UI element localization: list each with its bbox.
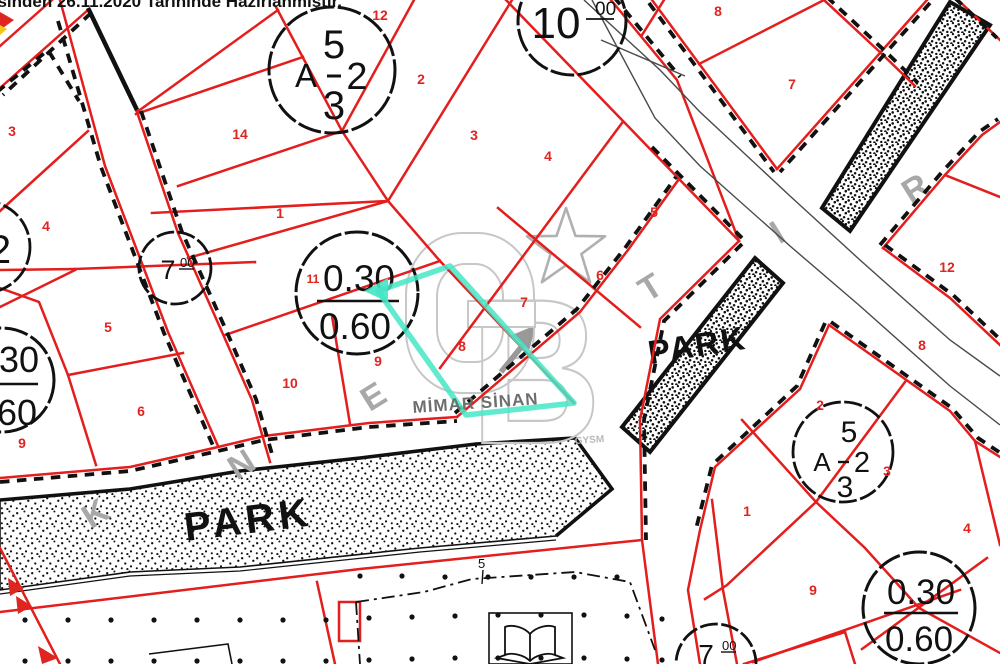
svg-text:A: A xyxy=(295,57,317,94)
svg-text:3: 3 xyxy=(837,471,854,504)
svg-text:8: 8 xyxy=(918,337,926,353)
svg-text:4: 4 xyxy=(544,148,552,164)
svg-text:2: 2 xyxy=(854,447,870,479)
svg-text:7: 7 xyxy=(698,639,714,664)
svg-text:0.60: 0.60 xyxy=(885,620,953,659)
svg-text:7: 7 xyxy=(788,76,796,92)
svg-text:0.60: 0.60 xyxy=(0,392,37,433)
svg-text:2: 2 xyxy=(346,56,367,98)
svg-text:5: 5 xyxy=(841,416,858,449)
svg-text:14: 14 xyxy=(232,126,248,142)
svg-text:3: 3 xyxy=(323,84,345,128)
svg-text:3: 3 xyxy=(8,123,16,139)
svg-text:10: 10 xyxy=(532,0,581,48)
svg-text:0.30: 0.30 xyxy=(0,339,39,380)
svg-text:9: 9 xyxy=(809,582,817,598)
svg-text:00: 00 xyxy=(722,638,736,653)
svg-text:8: 8 xyxy=(458,338,466,354)
svg-text:0.60: 0.60 xyxy=(319,306,391,347)
svg-text:GYSM: GYSM xyxy=(574,434,604,447)
svg-text:00: 00 xyxy=(180,255,194,270)
svg-text:6: 6 xyxy=(596,267,604,283)
svg-text:B: B xyxy=(470,256,602,487)
svg-text:5: 5 xyxy=(104,319,112,335)
svg-text:2: 2 xyxy=(0,228,11,272)
svg-text:5: 5 xyxy=(478,556,485,571)
svg-text:4: 4 xyxy=(42,218,50,234)
svg-text:11: 11 xyxy=(307,272,320,286)
svg-text:00: 00 xyxy=(595,0,616,20)
svg-text:9: 9 xyxy=(18,435,26,451)
svg-text:5: 5 xyxy=(650,204,658,220)
svg-text:4: 4 xyxy=(963,520,971,536)
svg-text:1: 1 xyxy=(743,503,751,519)
svg-text:12: 12 xyxy=(372,7,388,23)
svg-text:2: 2 xyxy=(417,71,425,87)
svg-text:A: A xyxy=(813,447,831,477)
svg-text:10: 10 xyxy=(282,375,298,391)
svg-text:3: 3 xyxy=(470,127,478,143)
svg-text:7: 7 xyxy=(160,255,175,285)
svg-text:esinden 26.11.2020 Tarihinde H: esinden 26.11.2020 Tarihinde Hazırlanmış… xyxy=(0,0,342,11)
svg-text:8: 8 xyxy=(714,3,722,19)
svg-text:0.30: 0.30 xyxy=(887,573,955,612)
svg-text:2: 2 xyxy=(816,397,824,413)
svg-text:3: 3 xyxy=(883,463,891,479)
svg-text:7: 7 xyxy=(520,294,528,310)
svg-text:6: 6 xyxy=(137,403,145,419)
svg-text:5: 5 xyxy=(323,23,345,67)
svg-text:12: 12 xyxy=(939,259,955,275)
svg-text:9: 9 xyxy=(374,353,382,369)
svg-text:1: 1 xyxy=(276,205,284,221)
